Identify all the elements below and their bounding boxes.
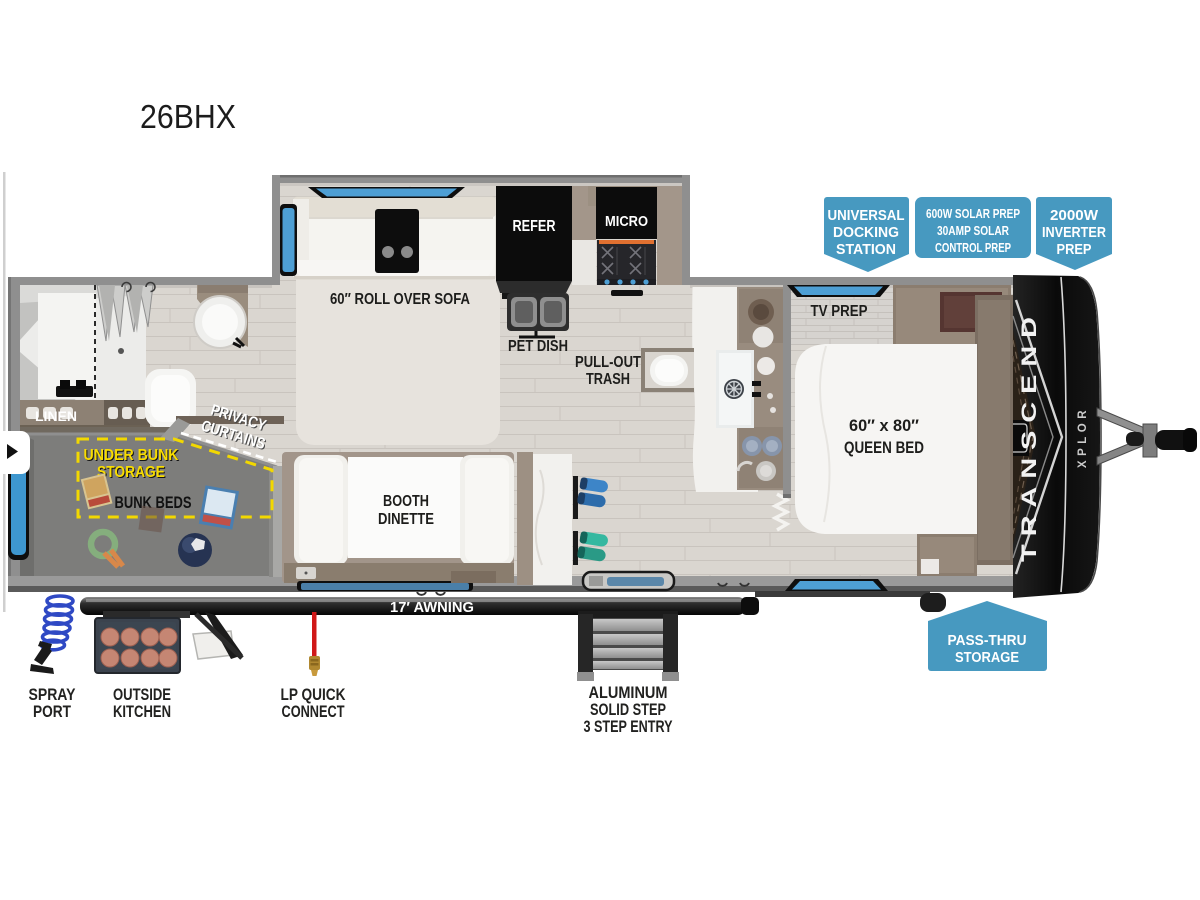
svg-text:DOCKING: DOCKING [833, 225, 899, 241]
svg-text:30AMP SOLAR: 30AMP SOLAR [937, 224, 1009, 238]
svg-text:TV PREP: TV PREP [811, 303, 868, 320]
svg-text:600W SOLAR PREP: 600W SOLAR PREP [926, 207, 1020, 221]
svg-text:PET DISH: PET DISH [508, 338, 568, 355]
svg-text:STORAGE: STORAGE [97, 464, 165, 481]
svg-text:STATION: STATION [836, 242, 896, 258]
svg-text:UNIVERSAL: UNIVERSAL [828, 208, 905, 224]
svg-text:UNDER BUNK: UNDER BUNK [84, 447, 180, 464]
svg-text:CONNECT: CONNECT [282, 703, 345, 721]
svg-text:SPRAY: SPRAY [29, 686, 76, 704]
svg-text:CONTROL PREP: CONTROL PREP [935, 241, 1011, 255]
svg-text:MICRO: MICRO [605, 214, 648, 230]
svg-text:TRASH: TRASH [586, 371, 630, 388]
svg-text:REFER: REFER [513, 218, 556, 235]
svg-text:OUTSIDE: OUTSIDE [113, 686, 171, 704]
svg-text:TRANSCEND: TRANSCEND [1018, 312, 1041, 562]
svg-text:XPLOR: XPLOR [1077, 406, 1089, 468]
svg-text:2000W: 2000W [1050, 208, 1098, 224]
svg-text:PASS-THRU: PASS-THRU [948, 633, 1027, 649]
svg-text:LP QUICK: LP QUICK [281, 686, 346, 704]
svg-text:26BHX: 26BHX [140, 98, 236, 135]
svg-text:PORT: PORT [33, 703, 71, 721]
svg-text:SOLID STEP: SOLID STEP [590, 701, 666, 719]
svg-text:BOOTH: BOOTH [383, 493, 429, 510]
svg-text:17′ AWNING: 17′ AWNING [390, 599, 474, 616]
svg-text:PULL-OUT: PULL-OUT [575, 354, 641, 371]
svg-text:3 STEP ENTRY: 3 STEP ENTRY [584, 718, 673, 736]
svg-text:ALUMINUM: ALUMINUM [589, 684, 668, 702]
svg-text:60″ ROLL OVER SOFA: 60″ ROLL OVER SOFA [330, 291, 470, 308]
svg-text:INVERTER: INVERTER [1042, 225, 1106, 241]
svg-text:DINETTE: DINETTE [378, 511, 434, 528]
svg-text:PREP: PREP [1057, 242, 1092, 258]
svg-text:KITCHEN: KITCHEN [113, 703, 171, 721]
svg-text:LINEN: LINEN [35, 408, 77, 424]
svg-text:QUEEN BED: QUEEN BED [844, 438, 924, 457]
svg-text:60″ x 80″: 60″ x 80″ [849, 416, 919, 435]
svg-text:STORAGE: STORAGE [955, 650, 1019, 666]
